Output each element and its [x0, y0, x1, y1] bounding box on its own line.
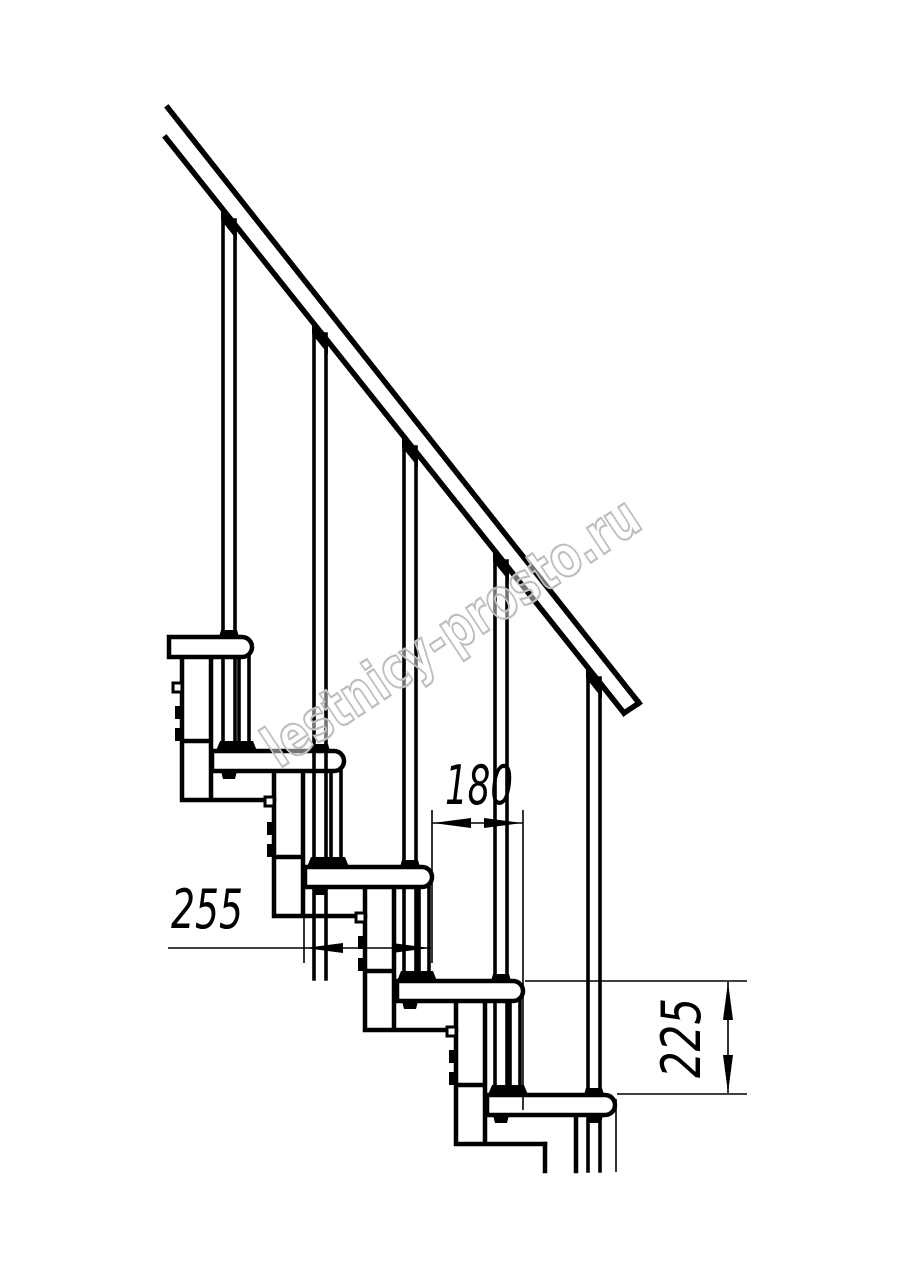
baluster-foot: [397, 971, 423, 981]
dimension-180: 180: [432, 754, 523, 828]
baluster-foot: [307, 857, 333, 867]
module-bolt: [358, 936, 365, 949]
baluster-collar: [584, 1088, 604, 1095]
module-bolt: [175, 728, 182, 741]
dimension-label-run: 180: [445, 754, 513, 817]
strut: [239, 657, 249, 749]
module-bolt: [267, 844, 274, 857]
module-bolt: [358, 958, 365, 971]
dimension-label-rise: 225: [650, 998, 713, 1078]
baluster-foot: [216, 741, 242, 751]
tread: [487, 1095, 615, 1115]
baluster-collar: [219, 630, 239, 637]
arrowhead-left-icon: [305, 943, 343, 953]
baluster-nut: [312, 887, 328, 895]
arrowhead-right-icon: [392, 943, 430, 953]
module: [545, 1115, 576, 1171]
strut: [331, 771, 341, 865]
dimension-225: 225: [650, 982, 733, 1093]
baluster-nut: [493, 1115, 509, 1123]
arrowhead-up-icon: [723, 982, 733, 1020]
baluster-collar: [491, 974, 511, 981]
arrowhead-left-icon: [433, 818, 471, 828]
module-tab: [265, 797, 274, 806]
drawing-page: 255 180 225 lestnicy-prosto.ru: [0, 0, 914, 1280]
baluster-nut: [587, 1115, 603, 1123]
strut: [510, 1001, 520, 1093]
staircase-side-view-drawing: 255 180 225 lestnicy-prosto.ru: [0, 0, 914, 1280]
module-bolt: [267, 822, 274, 835]
module-tab: [447, 1027, 456, 1036]
module-tab: [356, 913, 365, 922]
module-bolt: [449, 1072, 456, 1085]
baluster-foot: [488, 1085, 514, 1095]
module-bolt: [449, 1050, 456, 1063]
module-tab: [173, 683, 182, 692]
module-bolt: [175, 706, 182, 719]
tread: [397, 981, 523, 1001]
strut: [419, 887, 429, 979]
baluster-nut: [221, 771, 237, 779]
dimension-label-tread-depth: 255: [171, 878, 243, 941]
watermark-text: lestnicy-prosto.ru: [251, 484, 653, 781]
tread: [169, 637, 252, 657]
arrowhead-down-icon: [723, 1055, 733, 1093]
baluster-nut: [402, 1001, 418, 1009]
baluster-collar: [400, 860, 420, 867]
arrowhead-right-icon: [484, 818, 522, 828]
tread: [305, 867, 432, 887]
